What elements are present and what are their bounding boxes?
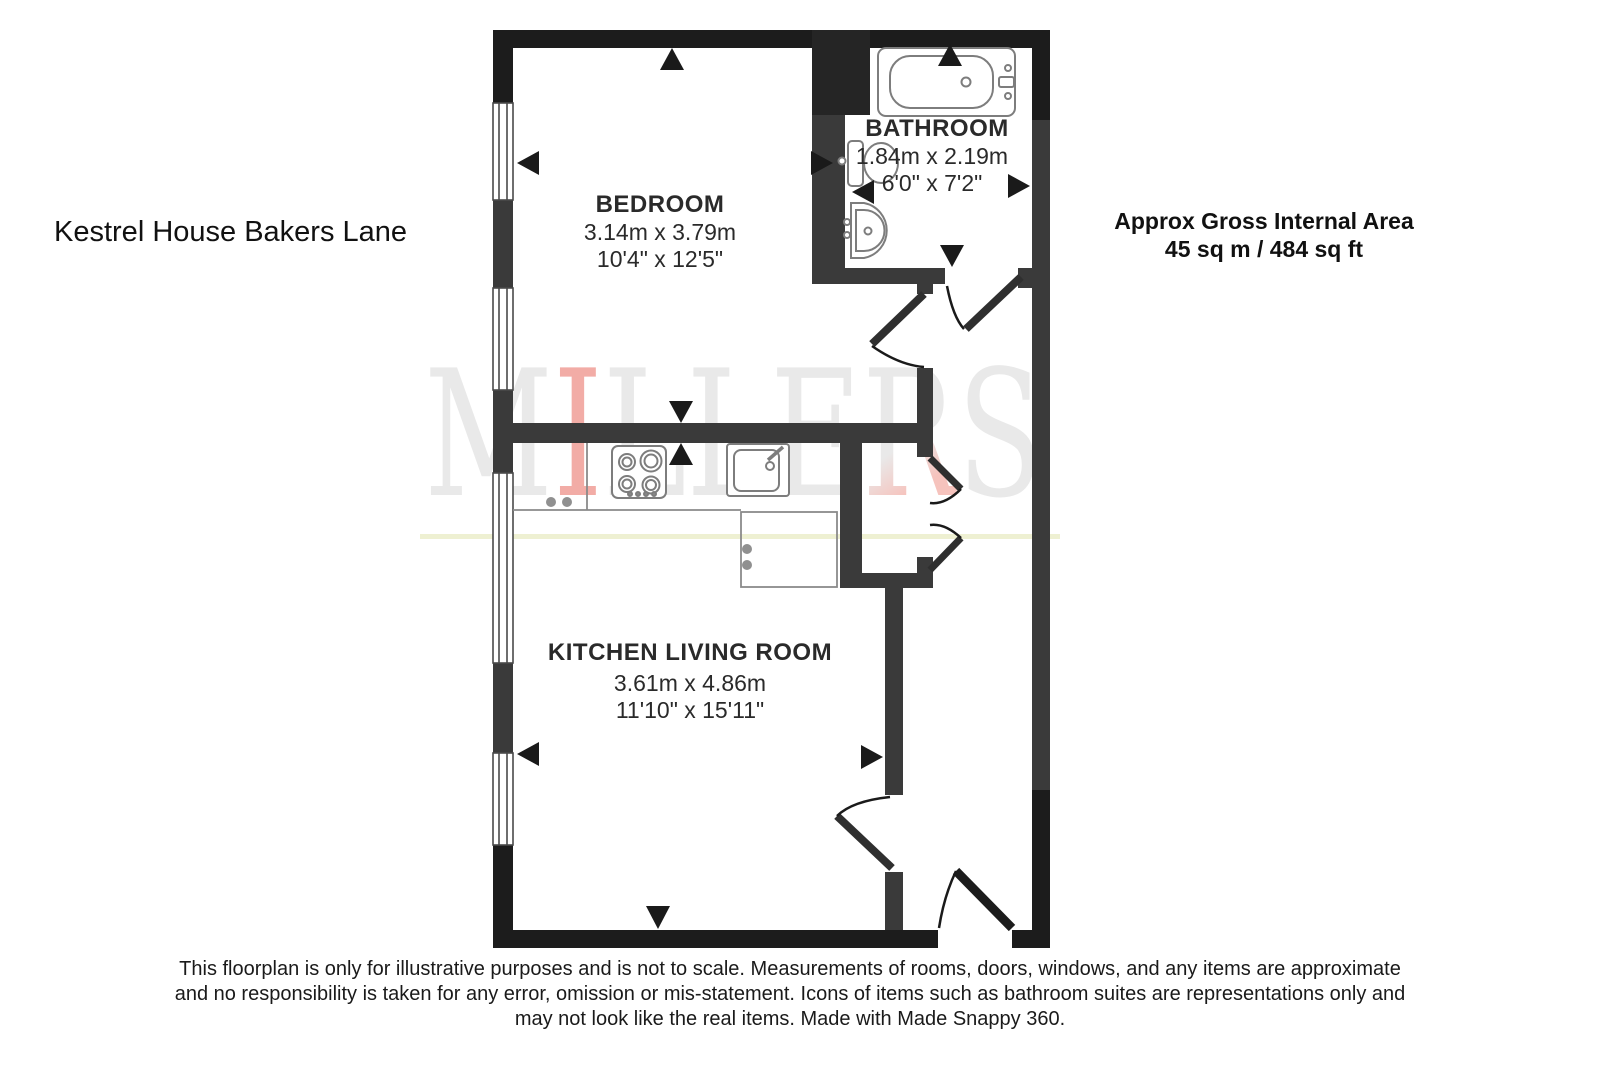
room-imperial-bathroom: 6'0" x 7'2" [882,170,983,197]
window [493,103,513,200]
disclaimer-line-2: and no responsibility is taken for any e… [140,982,1440,1007]
room-label-bathroom: BATHROOM [865,115,1009,143]
room-imperial-bedroom: 10'4" x 12'5" [597,246,723,273]
hob-icon [612,446,666,498]
direction-arrow [646,906,670,929]
property-title: Kestrel House Bakers Lane [54,216,407,249]
appliance-knob [742,544,752,554]
window [493,288,513,390]
gross-internal-area: Approx Gross Internal Area 45 sq m / 484… [1114,207,1414,263]
direction-arrow [517,151,539,175]
basin-icon [844,203,887,258]
counter-knob [546,497,556,507]
disclaimer-line-1: This floorplan is only for illustrative … [140,957,1440,982]
door-arc [837,797,890,816]
counter-knob [562,497,572,507]
door-arc [939,871,956,928]
direction-arrow [1008,174,1030,198]
room-label-kitchen-living-room: KITCHEN LIVING ROOM [548,639,832,667]
direction-arrow [940,245,964,267]
disclaimer-line-3: may not look like the real items. Made w… [140,1007,1440,1032]
direction-arrow [517,742,539,766]
area-line-1: Approx Gross Internal Area [1114,207,1414,235]
bathroom-door [947,277,1021,329]
door-arc [947,286,964,329]
room-imperial-kitchen-living-room: 11'10" x 15'11" [616,697,764,724]
closet-bifold-doors [930,458,961,570]
disclaimer: This floorplan is only for illustrative … [140,957,1440,1032]
appliance-knob [742,560,752,570]
window [493,753,513,845]
door-arc [930,525,961,538]
room-metric-kitchen-living-room: 3.61m x 4.86m [614,670,766,697]
floorplan-drawing [0,0,1619,1080]
area-line-2: 45 sq m / 484 sq ft [1114,235,1414,263]
kitchen-door [837,797,892,868]
entrance-door [939,871,1012,928]
window [493,473,513,663]
door-arc [872,346,924,367]
bedroom-door [872,294,924,367]
direction-arrow [669,401,693,423]
door-arc [930,489,961,503]
room-metric-bedroom: 3.14m x 3.79m [584,219,736,246]
room-metric-bathroom: 1.84m x 2.19m [856,143,1008,170]
direction-arrow [669,443,693,465]
direction-arrow [660,48,684,70]
room-label-bedroom: BEDROOM [596,191,725,219]
floorplan-page: MILLERS [0,0,1619,1080]
kitchen-sink-icon [727,444,789,496]
direction-arrow [861,745,883,769]
